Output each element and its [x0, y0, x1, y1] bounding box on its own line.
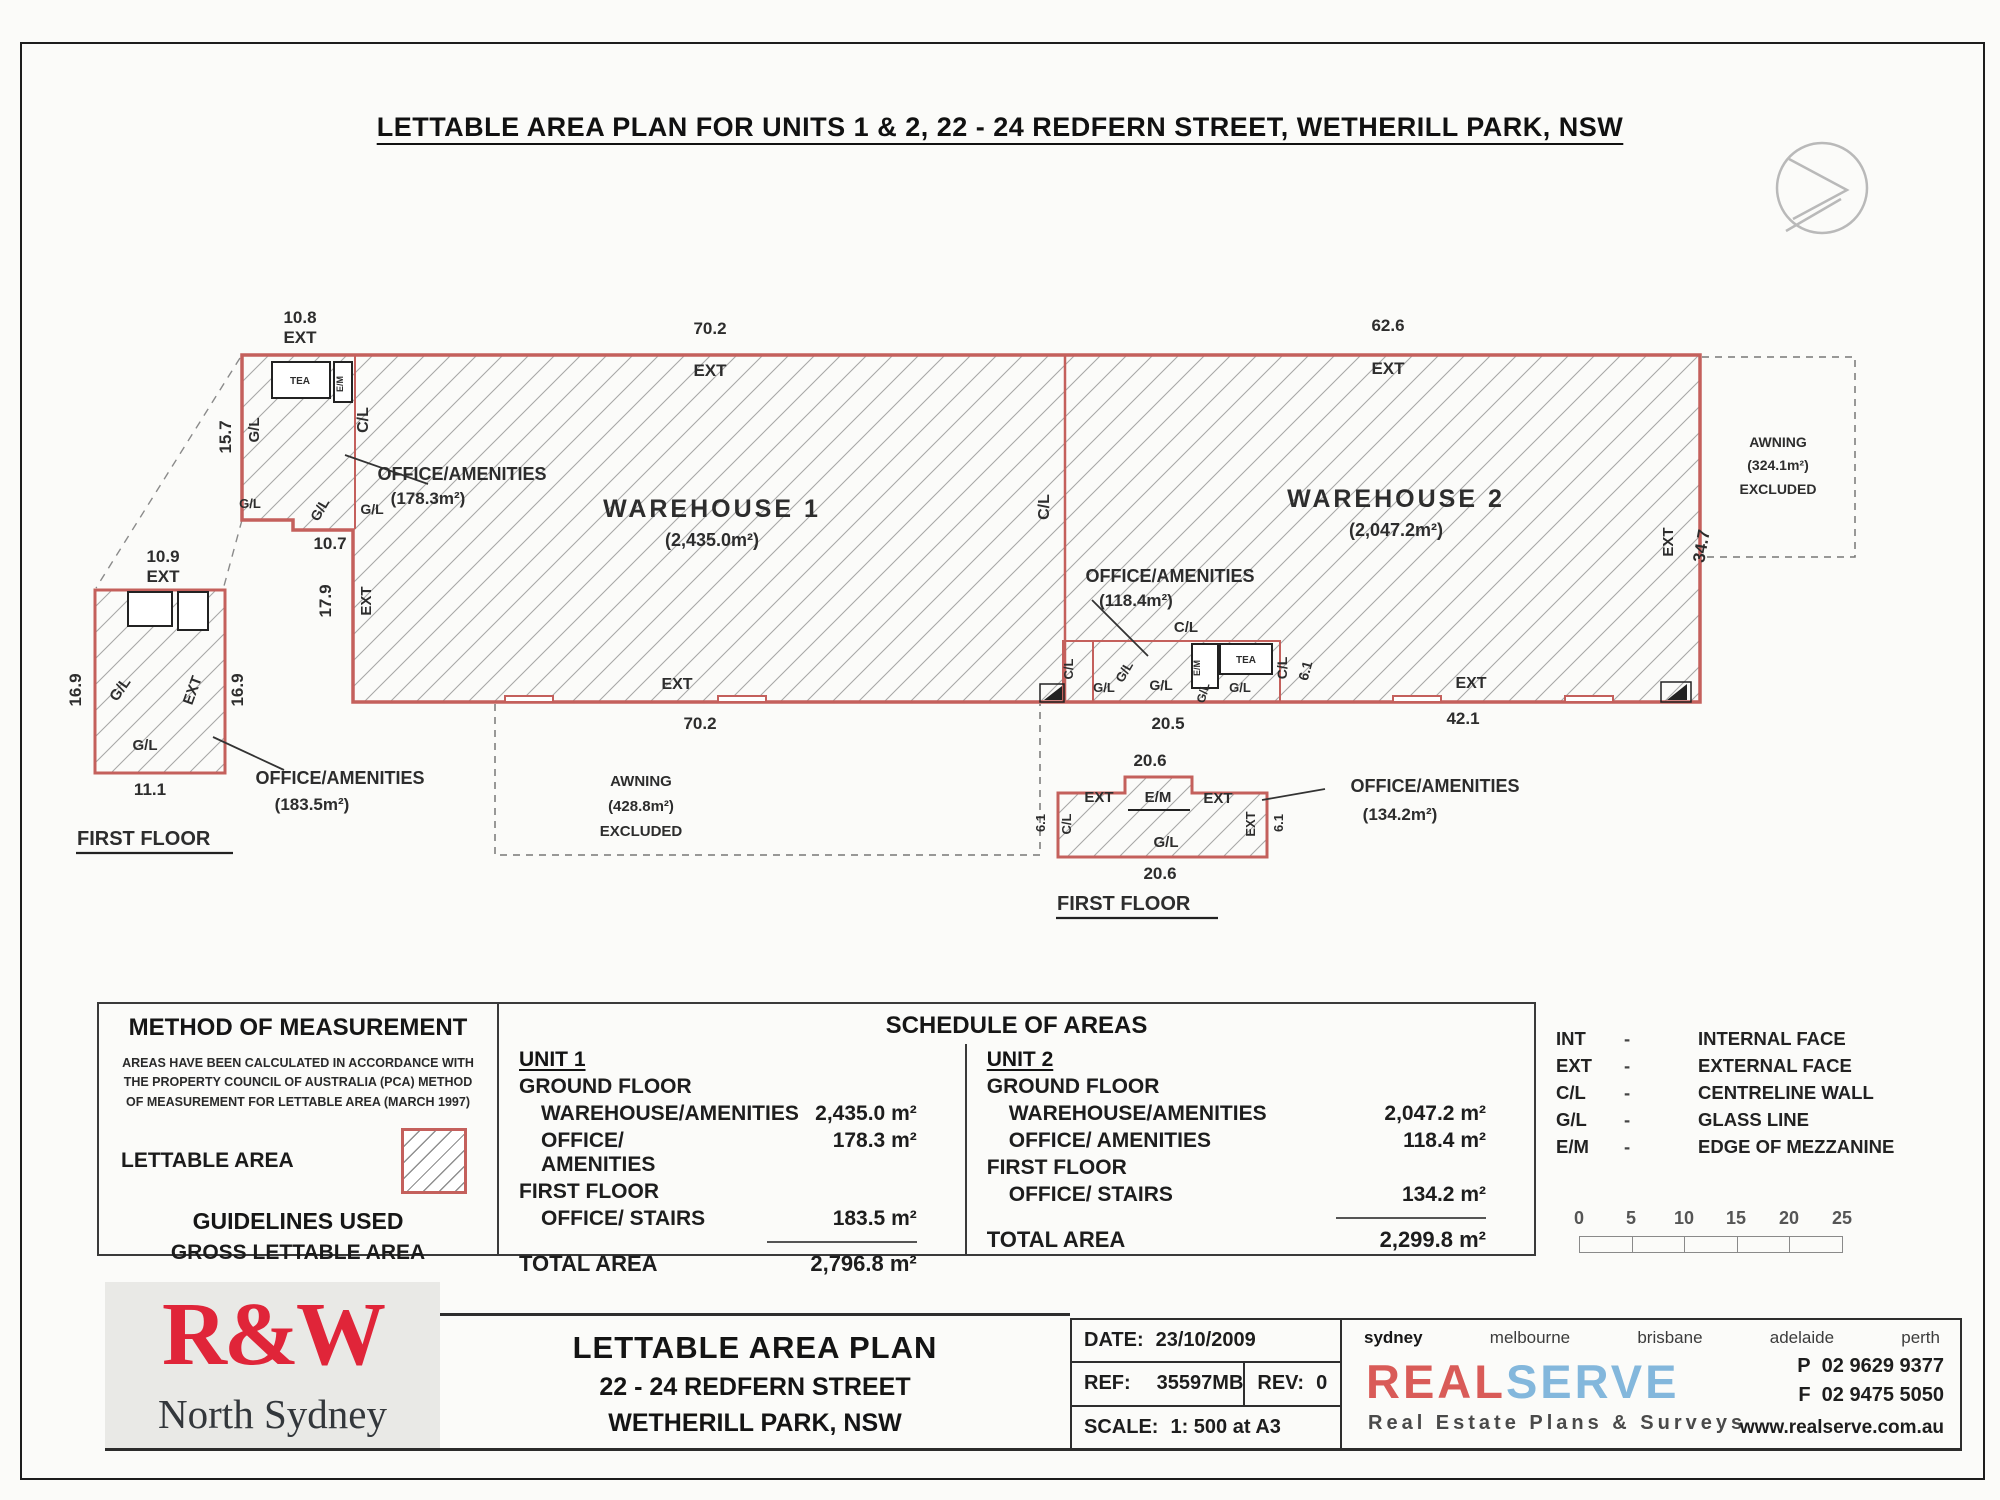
plan-label: E/M	[335, 376, 345, 392]
agency-branch: North Sydney	[105, 1390, 440, 1438]
guidelines-title: GUIDELINES USED	[99, 1208, 497, 1235]
plan-label: C/L	[1061, 658, 1076, 679]
rev-cell: REV: 0	[1245, 1363, 1340, 1404]
ff1-office-area: (183.5m²)	[275, 795, 350, 814]
table-row: OFFICE/ AMENITIES 178.3 m²	[519, 1129, 965, 1177]
office1-label: OFFICE/AMENITIES	[377, 464, 546, 484]
plan-label: G/L	[239, 496, 261, 511]
total-rule	[767, 1241, 917, 1243]
scale-row: SCALE: 1: 500 at A3	[1072, 1407, 1340, 1448]
dim-10-9: 10.9	[146, 547, 179, 566]
realserve-logo: REALSERVE	[1366, 1354, 1679, 1409]
lettable-area-label: LETTABLE AREA	[121, 1149, 294, 1173]
titleblock-divider	[105, 1448, 1962, 1451]
dim-70-2-bottom: 70.2	[683, 714, 716, 733]
floor-plan-drawing: 10.8EXT70.2EXT62.6EXT15.7G/LC/LG/LG/LG/L…	[0, 0, 2000, 1000]
table-row: OFFICE/ STAIRS 183.5 m²	[519, 1207, 965, 1231]
legend: INT-INTERNAL FACE EXT-EXTERNAL FACE C/L-…	[1556, 1028, 1956, 1163]
floor-heading: GROUND FLOOR	[987, 1075, 1160, 1099]
plan-label: EXT	[1084, 789, 1113, 806]
dim-16-9-left: 16.9	[66, 673, 85, 706]
plan-label: C/L	[355, 407, 372, 433]
method-of-measurement-box: METHOD OF MEASUREMENT AREAS HAVE BEEN CA…	[97, 1002, 499, 1256]
warehouse1-area: (2,435.0m²)	[665, 530, 759, 550]
plan-label: G/L	[1229, 680, 1251, 695]
plan-label: EXCLUDED	[600, 823, 683, 840]
schedule-title: SCHEDULE OF AREAS	[499, 1012, 1534, 1040]
table-row: OFFICE/ STAIRS 134.2 m²	[987, 1183, 1534, 1207]
table-row: OFFICE/ AMENITIES 118.4 m²	[987, 1129, 1534, 1153]
dim-20-5: 20.5	[1151, 714, 1184, 733]
office2-area: (118.4m²)	[1099, 591, 1173, 610]
plan-label: C/L	[1059, 813, 1074, 834]
realserve-website: www.realserve.com.au	[1740, 1414, 1944, 1442]
schedule-of-areas-box: SCHEDULE OF AREAS UNIT 1 GROUND FLOOR WA…	[497, 1002, 1536, 1256]
plan-label: EXCLUDED	[1739, 481, 1816, 497]
plan-title-line1: LETTABLE AREA PLAN	[573, 1330, 938, 1366]
dim-62-6: 62.6	[1371, 316, 1404, 335]
dim-10-8: 10.8	[283, 308, 316, 327]
table-row: WAREHOUSE/AMENITIES 2,047.2 m²	[987, 1102, 1534, 1126]
scale-bar-ticks: 0 5 10 15 20 25	[1565, 1208, 1857, 1230]
schedule-unit2-column: UNIT 2 GROUND FLOOR WAREHOUSE/AMENITIES …	[965, 1044, 1534, 1254]
plan-titleblock: LETTABLE AREA PLAN 22 - 24 REDFERN STREE…	[440, 1313, 1070, 1451]
dim-17-9: 17.9	[316, 584, 335, 617]
legend-item: G/L-GLASS LINE	[1556, 1109, 1956, 1131]
awning1-label: AWNING	[610, 773, 672, 790]
scale-bar: 0 5 10 15 20 25	[1565, 1208, 1857, 1260]
plan-label: EXT	[1371, 359, 1405, 378]
plan-label: G/L	[1154, 834, 1179, 851]
plan-label: EXT	[693, 361, 727, 380]
unit1-total-row: TOTAL AREA 2,796.8 m²	[519, 1251, 965, 1277]
guidelines-value: GROSS LETTABLE AREA	[99, 1241, 497, 1265]
plan-label: G/L	[133, 737, 158, 754]
awning1-boundary	[495, 704, 1040, 855]
lettable-area-swatch	[401, 1128, 467, 1194]
plan-label: EXT	[661, 676, 692, 693]
floor-heading: FIRST FLOOR	[519, 1180, 659, 1204]
date-row: DATE: 23/10/2009	[1072, 1320, 1340, 1363]
ref-cell: REF: 35597MB	[1072, 1363, 1245, 1404]
legend-item: E/M-EDGE OF MEZZANINE	[1556, 1136, 1956, 1158]
realserve-panel: sydney melbourne brisbane adelaide perth…	[1342, 1318, 1962, 1448]
rw-logo: R&W	[105, 1290, 440, 1380]
dim-42-1: 42.1	[1446, 709, 1479, 728]
office1-area: (178.3m²)	[391, 489, 466, 508]
realserve-contact: P 02 9629 9377 F 02 9475 5050 www.realse…	[1740, 1352, 1944, 1442]
plan-label: G/L	[1149, 677, 1173, 693]
dim-11-1: 11.1	[134, 780, 166, 799]
plan-label: EXT	[358, 586, 375, 615]
total-rule	[1336, 1217, 1486, 1219]
underline	[76, 853, 1218, 918]
awning2-area: (324.1m²)	[1747, 457, 1808, 473]
plan-label: EXT	[1660, 527, 1677, 556]
plan-title-line2: 22 - 24 REDFERN STREET	[599, 1373, 910, 1402]
plan-label: C/L	[1036, 494, 1053, 520]
awning2-label: AWNING	[1749, 434, 1807, 450]
plan-label: E/M	[1192, 660, 1202, 676]
ff1-office-label: OFFICE/AMENITIES	[255, 768, 424, 788]
agency-logo-panel: R&W North Sydney	[105, 1282, 440, 1449]
plan-label: 6.1	[1271, 814, 1286, 832]
unit2-heading: UNIT 2	[987, 1048, 1534, 1072]
dim-20-6-top: 20.6	[1133, 751, 1166, 770]
office2-label: OFFICE/AMENITIES	[1085, 566, 1254, 586]
legend-item: INT-INTERNAL FACE	[1556, 1028, 1956, 1050]
plan-label: EXT	[283, 328, 317, 347]
floor-heading: GROUND FLOOR	[519, 1075, 692, 1099]
table-row: WAREHOUSE/AMENITIES 2,435.0 m²	[519, 1102, 965, 1126]
plan-label: C/L	[1274, 656, 1290, 679]
plan-label: 6.1	[1033, 814, 1048, 832]
dim-20-6-bottom: 20.6	[1143, 864, 1176, 883]
ff1-title: FIRST FLOOR	[77, 828, 211, 850]
awning1-area: (428.8m²)	[608, 798, 674, 815]
legend-item: EXT-EXTERNAL FACE	[1556, 1055, 1956, 1077]
method-body: AREAS HAVE BEEN CALCULATED IN ACCORDANCE…	[99, 1054, 497, 1112]
warehouse2-label: WAREHOUSE 2	[1287, 485, 1505, 513]
scale-bar-ruler	[1579, 1236, 1843, 1253]
building-outline	[242, 355, 1700, 702]
floor-heading: FIRST FLOOR	[987, 1156, 1127, 1180]
plan-title-line3: WETHERILL PARK, NSW	[608, 1409, 902, 1438]
dim-10-7: 10.7	[313, 534, 346, 553]
dim-15-7: 15.7	[216, 420, 235, 453]
ff2-office-label: OFFICE/AMENITIES	[1350, 776, 1519, 796]
plan-label: C/L	[1174, 619, 1198, 636]
method-title: METHOD OF MEASUREMENT	[99, 1014, 497, 1042]
warehouse2-area: (2,047.2m²)	[1349, 520, 1443, 540]
drawing-info-table: DATE: 23/10/2009 REF: 35597MB REV: 0 SCA…	[1070, 1318, 1342, 1448]
north-arrow-icon	[1777, 143, 1867, 233]
plan-label: EXT	[1203, 790, 1232, 807]
ff2-office-area: (134.2m²)	[1363, 805, 1438, 824]
plan-label: G/L	[246, 418, 263, 443]
schedule-unit1-column: UNIT 1 GROUND FLOOR WAREHOUSE/AMENITIES …	[499, 1044, 965, 1254]
dim-70-2-top: 70.2	[693, 319, 726, 338]
legend-item: C/L-CENTRELINE WALL	[1556, 1082, 1956, 1104]
ff2-title: FIRST FLOOR	[1057, 893, 1191, 915]
plan-label: G/L	[360, 501, 384, 517]
plan-label: G/L	[1093, 680, 1115, 695]
realserve-cities: sydney melbourne brisbane adelaide perth	[1364, 1328, 1940, 1348]
warehouse1-label: WAREHOUSE 1	[603, 495, 821, 523]
unit1-heading: UNIT 1	[519, 1048, 965, 1072]
plan-label: E/M	[1145, 789, 1172, 806]
realserve-tagline: Real Estate Plans & Surveys	[1368, 1412, 1746, 1435]
tea-room-label: TEA	[290, 376, 310, 387]
dim-16-9-right: 16.9	[228, 673, 247, 706]
plan-label: EXT	[1243, 811, 1258, 836]
plan-label: EXT	[1455, 675, 1486, 692]
unit2-total-row: TOTAL AREA 2,299.8 m²	[987, 1227, 1534, 1253]
tea-room-label: TEA	[1236, 655, 1256, 666]
ff1-rooms	[128, 592, 208, 630]
plan-label: EXT	[146, 567, 180, 586]
